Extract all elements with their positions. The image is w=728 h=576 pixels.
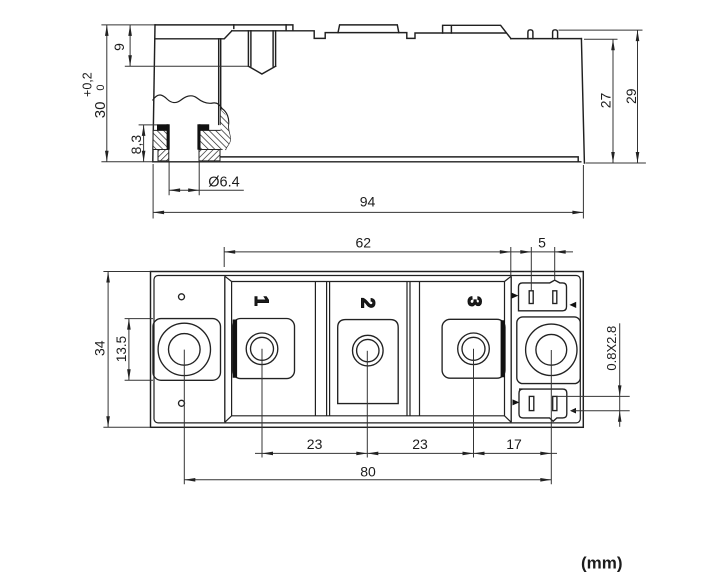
svg-text:80: 80 — [360, 463, 376, 479]
svg-text:5: 5 — [538, 234, 546, 250]
svg-text:13.5: 13.5 — [114, 336, 129, 362]
svg-text:30: 30 — [92, 102, 109, 119]
svg-text:1: 1 — [250, 296, 271, 307]
svg-text:94: 94 — [360, 194, 376, 210]
svg-text:27: 27 — [598, 93, 614, 109]
svg-text:62: 62 — [356, 234, 372, 250]
svg-text:2: 2 — [356, 298, 377, 309]
svg-text:0: 0 — [95, 85, 107, 91]
svg-text:34: 34 — [92, 340, 108, 356]
svg-text:9: 9 — [111, 43, 127, 51]
svg-text:29: 29 — [623, 88, 639, 104]
svg-text:8,3: 8,3 — [128, 135, 144, 155]
svg-text:+0,2: +0,2 — [81, 72, 95, 97]
svg-text:17: 17 — [506, 436, 522, 452]
svg-text:3: 3 — [463, 296, 484, 307]
svg-text:0.8X2.8: 0.8X2.8 — [604, 326, 619, 371]
svg-text:23: 23 — [412, 436, 428, 452]
svg-text:Ø6.4: Ø6.4 — [208, 175, 239, 191]
svg-text:(mm): (mm) — [581, 554, 623, 573]
svg-text:23: 23 — [307, 436, 323, 452]
